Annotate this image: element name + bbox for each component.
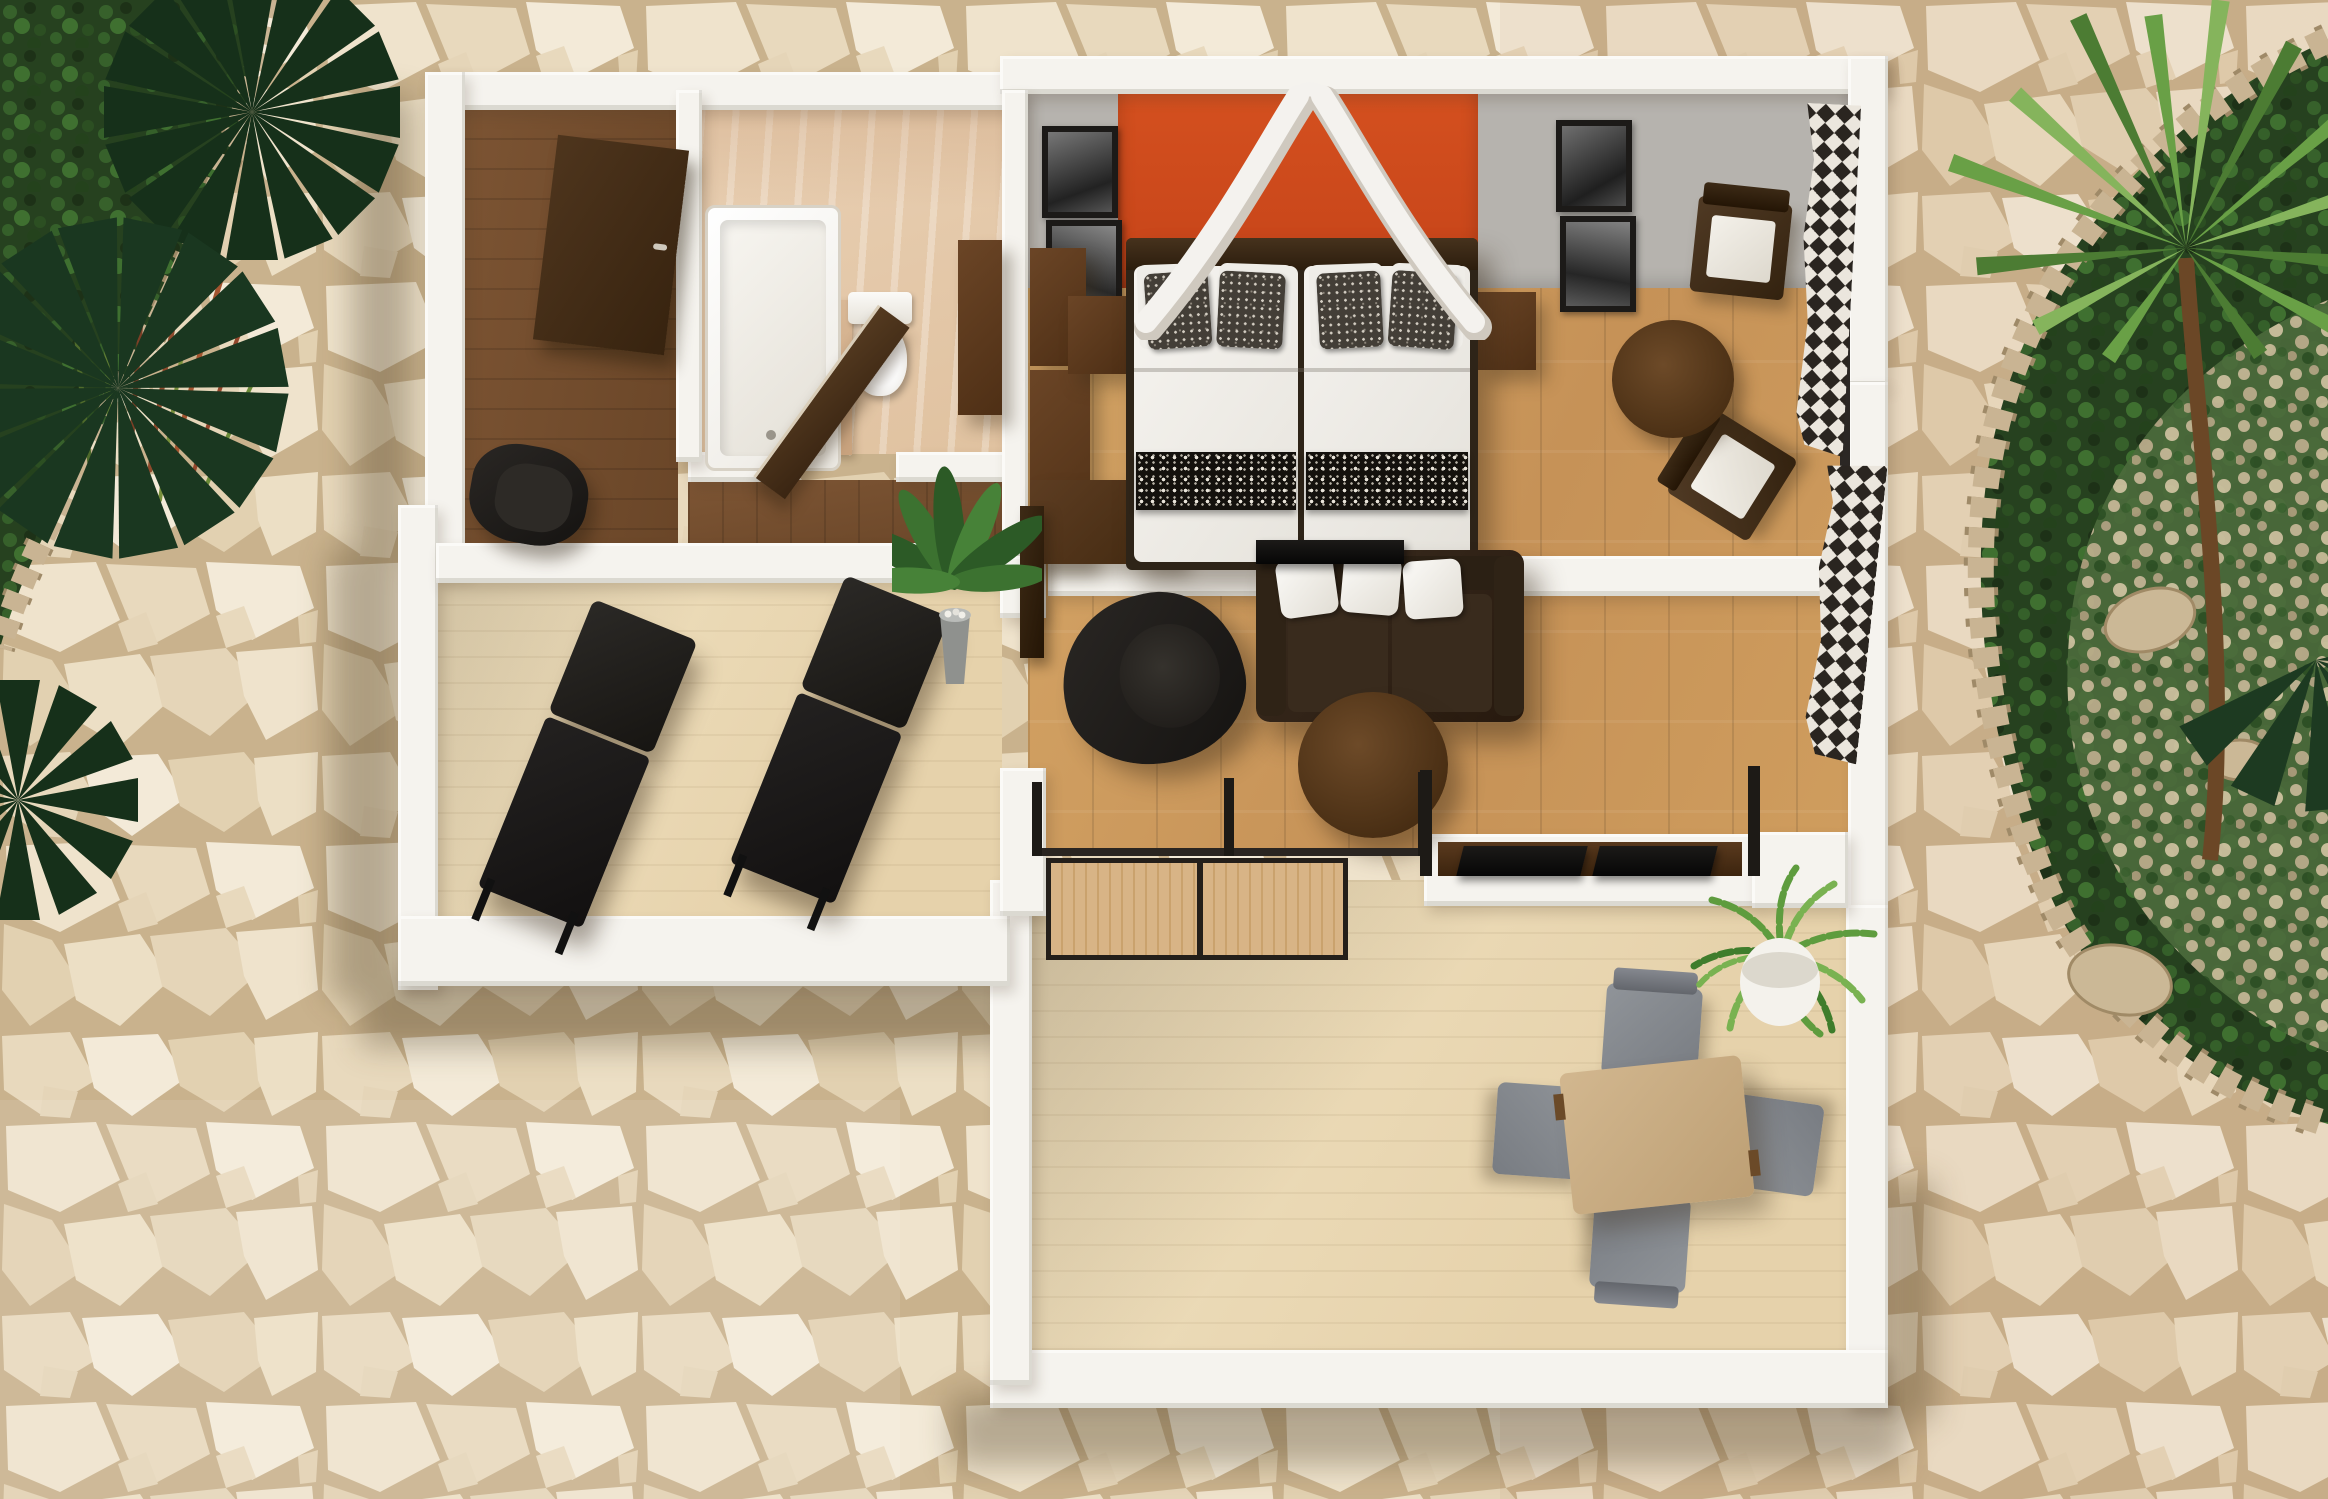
table-leg xyxy=(1553,1094,1566,1121)
palm-leaves xyxy=(1650,830,1910,1090)
wood-slat-screen xyxy=(1046,858,1202,960)
door-handle xyxy=(653,243,668,251)
entry-door-open xyxy=(533,135,689,356)
glass-door-post xyxy=(1032,782,1042,856)
bed-runner-right xyxy=(1306,452,1468,510)
wall-bottom-side-terrace xyxy=(398,916,1010,986)
tv-panel xyxy=(1456,846,1587,876)
bedroom-tv xyxy=(1256,540,1404,564)
floor-plan-scene xyxy=(0,0,2328,1499)
potted-plant-gray xyxy=(892,452,1042,692)
chair-cushion xyxy=(1706,215,1776,283)
bed-runner-left xyxy=(1136,452,1296,510)
wood-slat-screen xyxy=(1198,858,1348,960)
console-end-post xyxy=(1420,770,1432,876)
framed-portrait xyxy=(1556,120,1632,212)
white-planter-palm xyxy=(1650,830,1910,1090)
nook-armchair xyxy=(1689,195,1793,300)
wall-left-entry xyxy=(425,72,465,572)
bathtub-drain xyxy=(766,430,776,440)
wall-bottom-lower-terrace xyxy=(990,1350,1888,1408)
sofa-arm-right xyxy=(1494,556,1524,716)
wall-top-entry-bath xyxy=(432,72,1012,110)
canopy-drape xyxy=(1100,80,1520,340)
wall-entry-bath-divider xyxy=(676,90,702,462)
duvet-fold xyxy=(1134,368,1470,372)
throw-pillow xyxy=(1274,554,1340,620)
swivel-armchair-seat xyxy=(1109,613,1231,738)
framed-portrait xyxy=(1560,216,1636,312)
glass-door-post xyxy=(1224,778,1234,856)
bathroom-vanity xyxy=(958,240,1002,415)
round-side-table xyxy=(1612,320,1734,438)
entry-armchair-seat xyxy=(490,459,576,537)
throw-pillow xyxy=(1402,558,1464,620)
plant-leaves xyxy=(892,452,1042,692)
